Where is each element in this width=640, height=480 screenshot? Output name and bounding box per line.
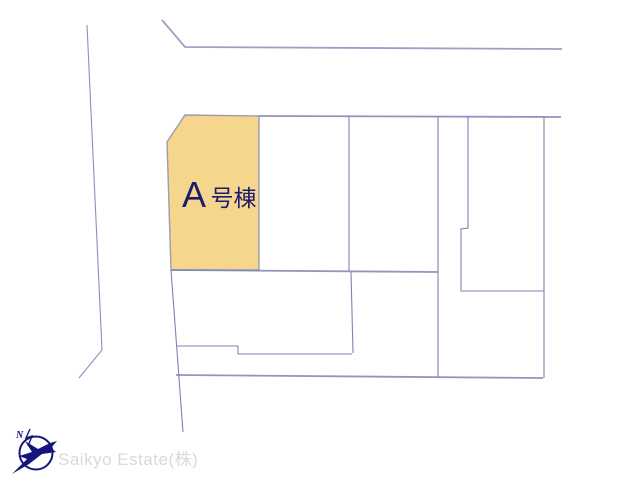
parcel-boundary-step xyxy=(177,346,352,354)
plot-map: A 号棟 N Saikyo Estate(株) xyxy=(0,0,640,480)
parcel-a-label-suffix: 号棟 xyxy=(210,186,256,212)
company-watermark: Saikyo Estate(株) xyxy=(58,450,198,469)
road-edge-left xyxy=(79,25,102,378)
parcel-boundary-row-top xyxy=(259,116,561,117)
road-edge-top xyxy=(162,20,562,49)
parcel-boundary-notch xyxy=(461,116,544,291)
parcel-a-label-prefix: A xyxy=(182,174,206,215)
plot-map-page: A 号棟 N Saikyo Estate(株) xyxy=(0,0,640,480)
parcel-boundary-slant xyxy=(171,270,183,432)
parcel-boundary-row-bottom xyxy=(171,270,438,272)
north-letter: N xyxy=(15,430,24,441)
parcel-boundary-bottom xyxy=(176,375,543,378)
parcel-boundary xyxy=(351,272,353,353)
road-lines xyxy=(79,20,562,378)
company-logo: N xyxy=(12,429,57,474)
